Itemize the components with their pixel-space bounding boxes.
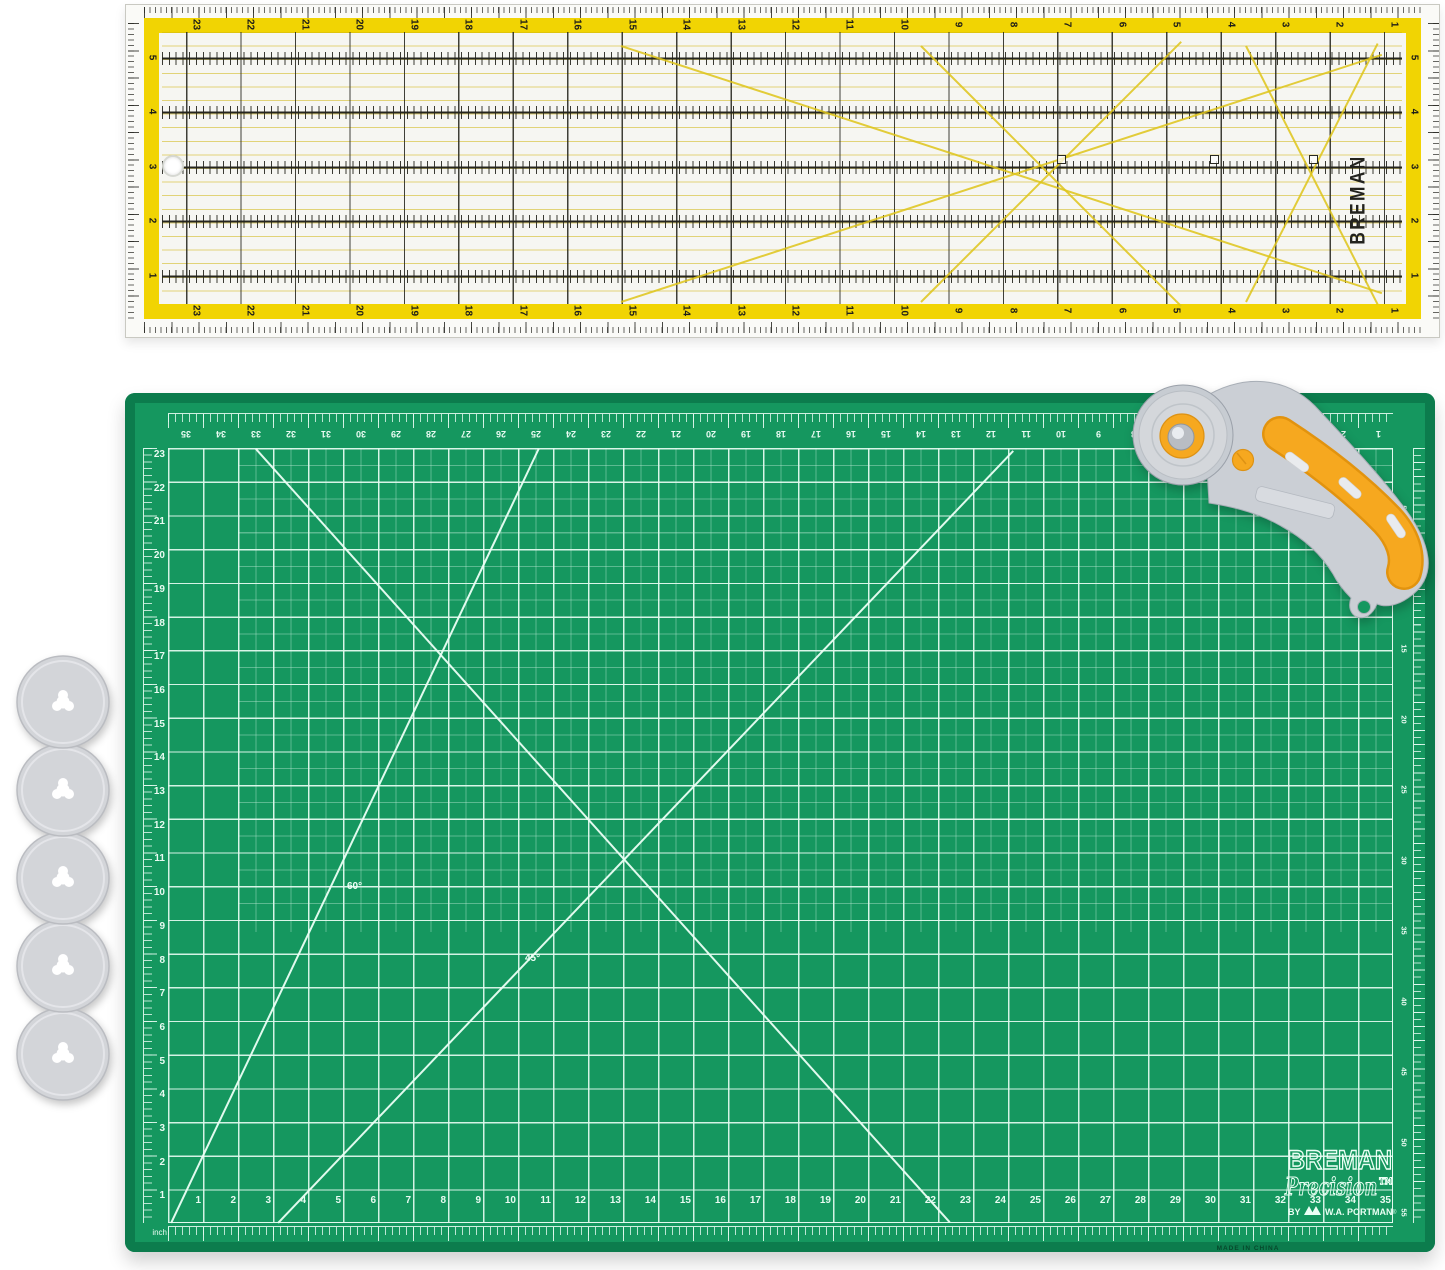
- mat-inch-number: 3: [243, 1195, 271, 1206]
- mat-angle-label-45: 45°: [525, 953, 540, 964]
- ruler-inch-number: 3: [147, 159, 158, 173]
- mat-inch-number: 11: [1011, 429, 1031, 439]
- mat-inch-number: 18: [143, 618, 165, 629]
- ruler-inch-number: 15: [626, 18, 637, 32]
- mat-made-in-label: MADE IN CHINA: [1183, 1245, 1313, 1252]
- rotary-blade: [17, 832, 109, 924]
- ruler-inch-number: 17: [517, 304, 528, 318]
- ruler-inch-number: 10: [898, 18, 909, 32]
- ruler-inch-number: 22: [245, 304, 256, 318]
- mat-inch-number: 30: [1188, 1195, 1216, 1206]
- ruler-inch-number: 5: [1171, 18, 1182, 32]
- mat-inch-number: 23: [143, 449, 165, 460]
- mat-inch-number: 32: [276, 429, 296, 439]
- ruler-inch-number: 9: [953, 304, 964, 318]
- ruler-inch-number: 16: [572, 18, 583, 32]
- ruler-inch-number: 20: [354, 18, 365, 32]
- mat-inch-number: 5: [143, 1056, 165, 1067]
- mat-inch-number: 26: [1048, 1195, 1076, 1206]
- rotary-blade: [17, 656, 109, 748]
- mat-inch-number: 6: [143, 1022, 165, 1033]
- mat-inch-number: 29: [1153, 1195, 1181, 1206]
- mat-inch-number: 20: [143, 550, 165, 561]
- mat-left-inch-numbers: 2322212019181716151413121110987654321: [143, 393, 165, 1252]
- mat-cm-number: 25: [1400, 782, 1409, 798]
- mat-inch-number: 25: [521, 429, 541, 439]
- mat-cm-number: 45: [1400, 1064, 1409, 1080]
- mat-inch-number: 12: [558, 1195, 586, 1206]
- mat-inch-number: 21: [873, 1195, 901, 1206]
- ruler-edge-ticks-bottom: [144, 321, 1423, 333]
- ruler-brand-logo: BREMAN: [1347, 134, 1364, 265]
- ruler-top-numbers: 2322212019181716151413121110987654321: [126, 19, 1439, 33]
- mat-inch-number: 22: [908, 1195, 936, 1206]
- spare-blades-stack: [10, 650, 120, 1115]
- mat-brand-line1: BREMAN: [1288, 1145, 1392, 1175]
- ruler-inch-number: 11: [844, 304, 855, 318]
- ruler-inch-number: 3: [1280, 18, 1291, 32]
- ruler-inch-number: 16: [572, 304, 583, 318]
- ruler-inch-number: 21: [299, 18, 310, 32]
- mat-inch-number: 23: [943, 1195, 971, 1206]
- ruler-inch-number: 15: [626, 304, 637, 318]
- ruler-inch-number: 6: [1116, 18, 1127, 32]
- mat-cm-number: 50: [1400, 1134, 1409, 1150]
- ruler-inch-hatch-row: [162, 52, 1402, 65]
- mat-inch-number: 3: [143, 1123, 165, 1134]
- mat-inch-number: 1: [173, 1195, 201, 1206]
- ruler-inch-number: 17: [517, 18, 528, 32]
- mat-bottom-inch-numbers: 1234567891011121314151617181920212223242…: [125, 1195, 1435, 1213]
- mat-brand-by: BY: [1288, 1207, 1301, 1217]
- mat-inch-number: 9: [453, 1195, 481, 1206]
- rotary-blade: [17, 744, 109, 836]
- ruler-inch-number: 20: [354, 304, 365, 318]
- mat-inch-number: 8: [418, 1195, 446, 1206]
- mat-inch-number: 2: [208, 1195, 236, 1206]
- mat-inch-number: 6: [348, 1195, 376, 1206]
- mat-inch-number: 26: [486, 429, 506, 439]
- mat-cm-number: 20: [1400, 711, 1409, 727]
- ruler-inch-number: 12: [789, 304, 800, 318]
- mat-inch-number: 22: [626, 429, 646, 439]
- ruler-inch-number: 5: [147, 51, 158, 65]
- ruler-inch-number: 13: [735, 304, 746, 318]
- mat-inch-number: 15: [871, 429, 891, 439]
- mat-angle-label-60: 60°: [347, 881, 362, 892]
- ruler-inch-number: 1: [1409, 268, 1420, 282]
- ruler-edge-ticks-right: [1427, 23, 1439, 319]
- mat-inch-number: 1: [143, 1190, 165, 1201]
- quilting-ruler: BREMAN 232221201918171615141312111098765…: [125, 4, 1440, 338]
- ruler-inch-number: 6: [1116, 304, 1127, 318]
- ruler-inch-number: 12: [789, 18, 800, 32]
- mat-inch-number: 11: [143, 853, 165, 864]
- mat-inch-number: 24: [556, 429, 576, 439]
- ruler-right-numbers: 54321: [1407, 5, 1421, 337]
- mat-inch-number: 15: [143, 719, 165, 730]
- mat-inch-number: 10: [488, 1195, 516, 1206]
- mat-brand-logo: BREMAN Precision™ BY W.A. PORTMAN ®: [1280, 1143, 1400, 1223]
- mat-inch-number: 31: [1223, 1195, 1251, 1206]
- mat-cm-number: 55: [1400, 1205, 1409, 1221]
- mat-inch-number: 2: [143, 1157, 165, 1168]
- ruler-square-marker: [1057, 155, 1066, 164]
- mat-inch-number: 4: [143, 1089, 165, 1100]
- ruler-inch-number: 4: [147, 105, 158, 119]
- mat-inch-number: 29: [381, 429, 401, 439]
- ruler-inch-hatch-row: [162, 215, 1402, 228]
- mat-inch-number: 21: [143, 516, 165, 527]
- mat-inch-number: 14: [143, 752, 165, 763]
- mat-inch-number: 24: [978, 1195, 1006, 1206]
- ruler-inch-number: 23: [191, 18, 202, 32]
- mat-inch-number: 9: [1081, 429, 1101, 439]
- ruler-bottom-numbers: 2322212019181716151413121110987654321: [126, 305, 1439, 319]
- ruler-hang-hole: [162, 155, 184, 177]
- mat-inch-number: 19: [731, 429, 751, 439]
- ruler-inch-number: 7: [1062, 18, 1073, 32]
- ruler-inch-number: 5: [1409, 51, 1420, 65]
- ruler-inch-number: 19: [408, 304, 419, 318]
- ruler-inch-number: 4: [1225, 304, 1236, 318]
- mat-inch-number: 7: [383, 1195, 411, 1206]
- mat-inch-number: 19: [143, 584, 165, 595]
- ruler-inch-number: 19: [408, 18, 419, 32]
- mat-inch-number: 16: [698, 1195, 726, 1206]
- rotary-blade: [17, 1008, 109, 1100]
- mat-inch-number: 27: [451, 429, 471, 439]
- mat-inch-number: 25: [1013, 1195, 1041, 1206]
- mat-inch-number: 12: [143, 820, 165, 831]
- mat-bottom-tick-ruler: [168, 1226, 1393, 1243]
- mat-cm-number: 30: [1400, 852, 1409, 868]
- mat-cm-number: 35: [1400, 923, 1409, 939]
- mat-inch-number: 5: [313, 1195, 341, 1206]
- ruler-inch-number: 1: [1388, 18, 1399, 32]
- mat-inch-number: 30: [346, 429, 366, 439]
- ruler-inch-hatch-row: [162, 270, 1402, 283]
- mat-inch-number: 13: [941, 429, 961, 439]
- ruler-inch-number: 8: [1007, 18, 1018, 32]
- mat-inch-number: 34: [206, 429, 226, 439]
- mat-inch-number: 12: [976, 429, 996, 439]
- ruler-inch-number: 14: [681, 18, 692, 32]
- mat-inch-number: 7: [143, 988, 165, 999]
- ruler-inch-number: 10: [898, 304, 909, 318]
- mat-inch-number: 10: [1046, 429, 1066, 439]
- ruler-inch-number: 4: [1409, 105, 1420, 119]
- mat-inch-number: 16: [836, 429, 856, 439]
- mat-inch-number: 35: [171, 429, 191, 439]
- mat-inch-number: 4: [278, 1195, 306, 1206]
- mat-inch-number: 18: [768, 1195, 796, 1206]
- wa-portman-monogram-icon: [1304, 1206, 1321, 1215]
- mat-inch-number: 17: [801, 429, 821, 439]
- ruler-inch-number: 2: [1334, 18, 1345, 32]
- ruler-left-numbers: 54321: [145, 5, 159, 337]
- ruler-inch-number: 9: [953, 18, 964, 32]
- ruler-square-marker: [1210, 155, 1219, 164]
- ruler-inch-number: 18: [463, 304, 474, 318]
- ruler-inch-number: 3: [1280, 304, 1291, 318]
- mat-inch-number: 31: [311, 429, 331, 439]
- ruler-inch-number: 22: [245, 18, 256, 32]
- ruler-inch-number: 18: [463, 18, 474, 32]
- ruler-inch-number: 4: [1225, 18, 1236, 32]
- mat-inch-number: 11: [523, 1195, 551, 1206]
- rotary-cutter-tail-hole: [1358, 601, 1371, 614]
- mat-inch-number: 19: [803, 1195, 831, 1206]
- ruler-inch-number: 14: [681, 304, 692, 318]
- ruler-inch-number: 2: [147, 214, 158, 228]
- rotary-cutter: [1115, 360, 1445, 650]
- mat-inch-number: 13: [593, 1195, 621, 1206]
- ruler-inch-number: 3: [1409, 159, 1420, 173]
- ruler-inch-number: 1: [147, 268, 158, 282]
- mat-inch-number: 17: [143, 651, 165, 662]
- ruler-square-marker: [1309, 155, 1318, 164]
- mat-inch-unit-label: inch: [145, 1228, 167, 1237]
- ruler-inch-number: 2: [1334, 304, 1345, 318]
- ruler-inch-number: 1: [1388, 304, 1399, 318]
- mat-inch-number: 33: [241, 429, 261, 439]
- mat-inch-number: 22: [143, 483, 165, 494]
- ruler-inch-number: 7: [1062, 304, 1073, 318]
- mat-inch-number: 17: [733, 1195, 761, 1206]
- mat-brand-name: W.A. PORTMAN: [1325, 1207, 1393, 1217]
- mat-inch-number: 28: [416, 429, 436, 439]
- mat-inch-number: 14: [628, 1195, 656, 1206]
- rotary-blade: [17, 920, 109, 1012]
- mat-inch-number: 20: [838, 1195, 866, 1206]
- ruler-inch-number: 2: [1409, 214, 1420, 228]
- mat-inch-number: 10: [143, 887, 165, 898]
- ruler-inch-number: 11: [844, 18, 855, 32]
- ruler-inch-number: 23: [191, 304, 202, 318]
- mat-inch-number: 27: [1083, 1195, 1111, 1206]
- mat-inch-number: 18: [766, 429, 786, 439]
- mat-brand-reg: ®: [1392, 1209, 1397, 1216]
- mat-inch-number: 15: [663, 1195, 691, 1206]
- mat-inch-number: 23: [591, 429, 611, 439]
- mat-inch-number: 20: [696, 429, 716, 439]
- mat-cm-number: 40: [1400, 993, 1409, 1009]
- mat-inch-number: 14: [906, 429, 926, 439]
- mat-brand-line2: Precision™: [1284, 1172, 1395, 1201]
- ruler-inch-number: 5: [1171, 304, 1182, 318]
- ruler-inch-number: 13: [735, 18, 746, 32]
- mat-inch-number: 28: [1118, 1195, 1146, 1206]
- ruler-inch-number: 21: [299, 304, 310, 318]
- mat-inch-number: 8: [143, 955, 165, 966]
- mat-inch-number: 9: [143, 921, 165, 932]
- mat-inch-number: 21: [661, 429, 681, 439]
- rotary-cutter-bolt: [1168, 424, 1194, 450]
- mat-inch-number: 13: [143, 786, 165, 797]
- ruler-inch-number: 8: [1007, 304, 1018, 318]
- ruler-edge-ticks-left: [128, 23, 140, 319]
- mat-inch-number: 16: [143, 685, 165, 696]
